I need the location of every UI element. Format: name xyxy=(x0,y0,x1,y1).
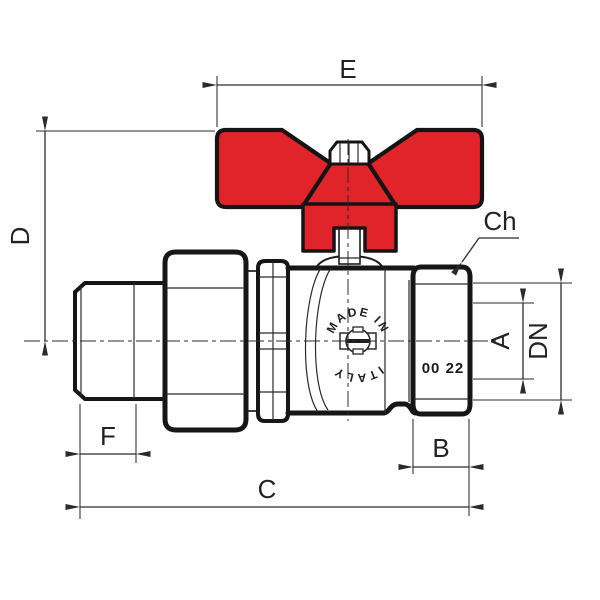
dimension-label-C: C xyxy=(258,474,277,504)
body-bottom-waist-bump xyxy=(384,404,415,413)
dimension-label-E: E xyxy=(339,54,356,84)
dimension-label-B: B xyxy=(432,433,449,463)
dimension-label-A: A xyxy=(485,332,515,350)
valve-stem xyxy=(339,226,360,264)
handle-top-nut xyxy=(330,142,369,164)
dimension-E: E xyxy=(217,54,482,127)
dimension-label-F: F xyxy=(100,421,116,451)
valve-technical-drawing: MADE IN ITALY 00 22 xyxy=(0,0,600,600)
dimension-B: B xyxy=(413,419,469,516)
dimension-label-Ch: Ch xyxy=(483,206,516,236)
emblem-bottom-notch xyxy=(353,349,363,354)
date-code-stamp: 00 22 xyxy=(422,360,465,377)
valve-body: MADE IN ITALY 00 22 xyxy=(75,226,470,430)
dimension-F: F xyxy=(80,404,136,519)
dimension-C: C xyxy=(80,474,469,507)
dimension-label-D: D xyxy=(5,227,35,246)
dimension-Ch: Ch xyxy=(462,206,519,262)
leader-line xyxy=(462,238,479,262)
emblem-top-notch xyxy=(353,327,363,332)
dimension-label-DN: DN xyxy=(523,322,553,360)
